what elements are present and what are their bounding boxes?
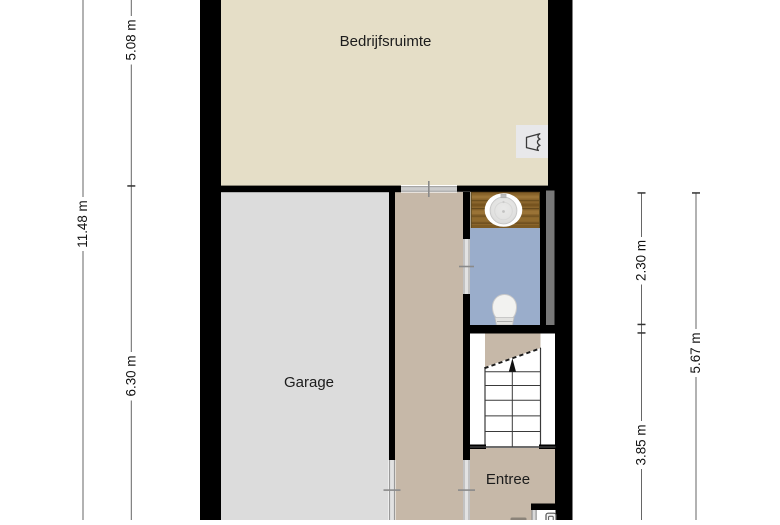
svg-text:5.67 m: 5.67 m — [688, 333, 703, 374]
svg-text:Bedrijfsruimte: Bedrijfsruimte — [340, 33, 432, 50]
svg-text:3.85 m: 3.85 m — [634, 425, 649, 466]
svg-text:11.48 m: 11.48 m — [75, 200, 90, 247]
svg-text:Entree: Entree — [486, 471, 530, 488]
svg-text:Garage: Garage — [284, 374, 334, 391]
svg-text:2.30 m: 2.30 m — [634, 240, 649, 281]
svg-text:5.08 m: 5.08 m — [123, 20, 138, 61]
svg-text:6.30 m: 6.30 m — [123, 356, 138, 397]
